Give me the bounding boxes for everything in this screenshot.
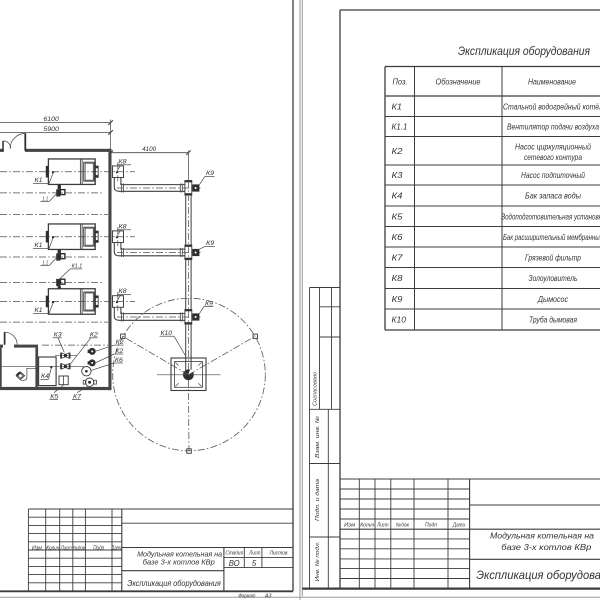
svg-text:К1: К1 bbox=[392, 102, 403, 111]
svg-text:Листов: Листов bbox=[269, 550, 288, 556]
svg-text:К4: К4 bbox=[392, 192, 404, 201]
svg-text:Труба дымовая: Труба дымовая bbox=[529, 316, 578, 325]
svg-text:Экспликация оборудования: Экспликация оборудования bbox=[476, 569, 600, 582]
svg-text:№док: №док bbox=[73, 545, 85, 551]
svg-text:Водоподготовительная установка: Водоподготовительная установка bbox=[501, 212, 600, 221]
svg-text:К7: К7 bbox=[392, 253, 404, 262]
svg-text:Экспликация оборудования: Экспликация оборудования bbox=[458, 44, 590, 58]
svg-text:К8: К8 bbox=[392, 274, 404, 283]
svg-text:№док: №док bbox=[396, 523, 409, 529]
svg-text:Лист: Лист bbox=[60, 545, 72, 551]
svg-text:Дата: Дата bbox=[452, 523, 465, 529]
svg-text:Инв. № подл.: Инв. № подл. bbox=[315, 542, 321, 582]
svg-text:Лист: Лист bbox=[249, 550, 261, 556]
svg-text:К5: К5 bbox=[392, 212, 404, 221]
svg-text:Изм: Изм bbox=[32, 545, 42, 551]
svg-text:А3: А3 bbox=[264, 594, 271, 600]
svg-text:К8: К8 bbox=[119, 158, 128, 165]
svg-text:Бак расширительный мембранный: Бак расширительный мембранный bbox=[503, 233, 600, 242]
svg-text:К6: К6 bbox=[392, 233, 404, 242]
svg-text:Стадия: Стадия bbox=[225, 550, 243, 556]
svg-text:К8: К8 bbox=[119, 288, 128, 295]
svg-text:сетевого контура: сетевого контура bbox=[524, 153, 582, 162]
svg-text:Стальной водогрейный котёл: Стальной водогрейный котёл bbox=[503, 102, 600, 111]
svg-text:Изм: Изм bbox=[344, 523, 355, 529]
svg-text:Колич: Колич bbox=[360, 523, 374, 529]
svg-text:Экспликация оборудования: Экспликация оборудования bbox=[127, 578, 221, 588]
svg-text:5: 5 bbox=[252, 559, 257, 568]
svg-text:6100: 6100 bbox=[43, 116, 59, 123]
svg-text:Насос циркуляционный: Насос циркуляционный bbox=[515, 143, 591, 152]
svg-text:Колич: Колич bbox=[46, 545, 59, 551]
svg-text:К9: К9 bbox=[392, 295, 404, 304]
svg-text:ВО: ВО bbox=[229, 559, 240, 568]
svg-text:4100: 4100 bbox=[142, 146, 157, 153]
svg-text:К1: К1 bbox=[35, 307, 43, 314]
svg-text:Лист: Лист bbox=[376, 523, 389, 529]
svg-text:Наименование: Наименование bbox=[528, 77, 576, 87]
svg-text:Подп: Подп bbox=[425, 523, 437, 529]
svg-text:Согласовано: Согласовано bbox=[312, 371, 318, 406]
svg-text:Грязевой фильтр: Грязевой фильтр bbox=[525, 253, 581, 262]
svg-text:К1: К1 bbox=[35, 177, 43, 184]
svg-text:Взам. инв. №: Взам. инв. № bbox=[315, 416, 321, 458]
svg-text:Вентилятор подачи воздуха: Вентилятор подачи воздуха bbox=[507, 123, 599, 132]
svg-text:Подп: Подп bbox=[93, 545, 104, 551]
svg-text:базе 3-х котлов КВр: базе 3-х котлов КВр bbox=[501, 542, 591, 552]
svg-text:Бак запаса воды: Бак запаса воды bbox=[525, 192, 581, 201]
svg-text:К1: К1 bbox=[35, 242, 43, 249]
svg-text:Поз.: Поз. bbox=[393, 77, 408, 87]
svg-text:К2: К2 bbox=[392, 147, 404, 156]
svg-text:Дымосос: Дымосос bbox=[537, 295, 568, 304]
svg-text:К1.1: К1.1 bbox=[392, 123, 408, 132]
svg-text:Насос подпиточный: Насос подпиточный bbox=[521, 171, 585, 180]
svg-text:Формат: Формат bbox=[238, 594, 255, 600]
svg-text:Обозначение: Обозначение bbox=[436, 77, 481, 87]
svg-text:К8: К8 bbox=[119, 223, 128, 230]
svg-text:К10: К10 bbox=[392, 316, 407, 325]
svg-text:Модульная котельная на: Модульная котельная на bbox=[490, 531, 594, 541]
svg-text:базе 3-х котлов КВр: базе 3-х котлов КВр bbox=[143, 558, 215, 567]
svg-text:К3: К3 bbox=[392, 171, 404, 180]
svg-text:Подп. и дата: Подп. и дата bbox=[315, 479, 321, 521]
svg-text:Золоуловитель: Золоуловитель bbox=[529, 274, 578, 283]
svg-text:5900: 5900 bbox=[43, 126, 59, 133]
svg-text:Дата: Дата bbox=[111, 545, 123, 551]
